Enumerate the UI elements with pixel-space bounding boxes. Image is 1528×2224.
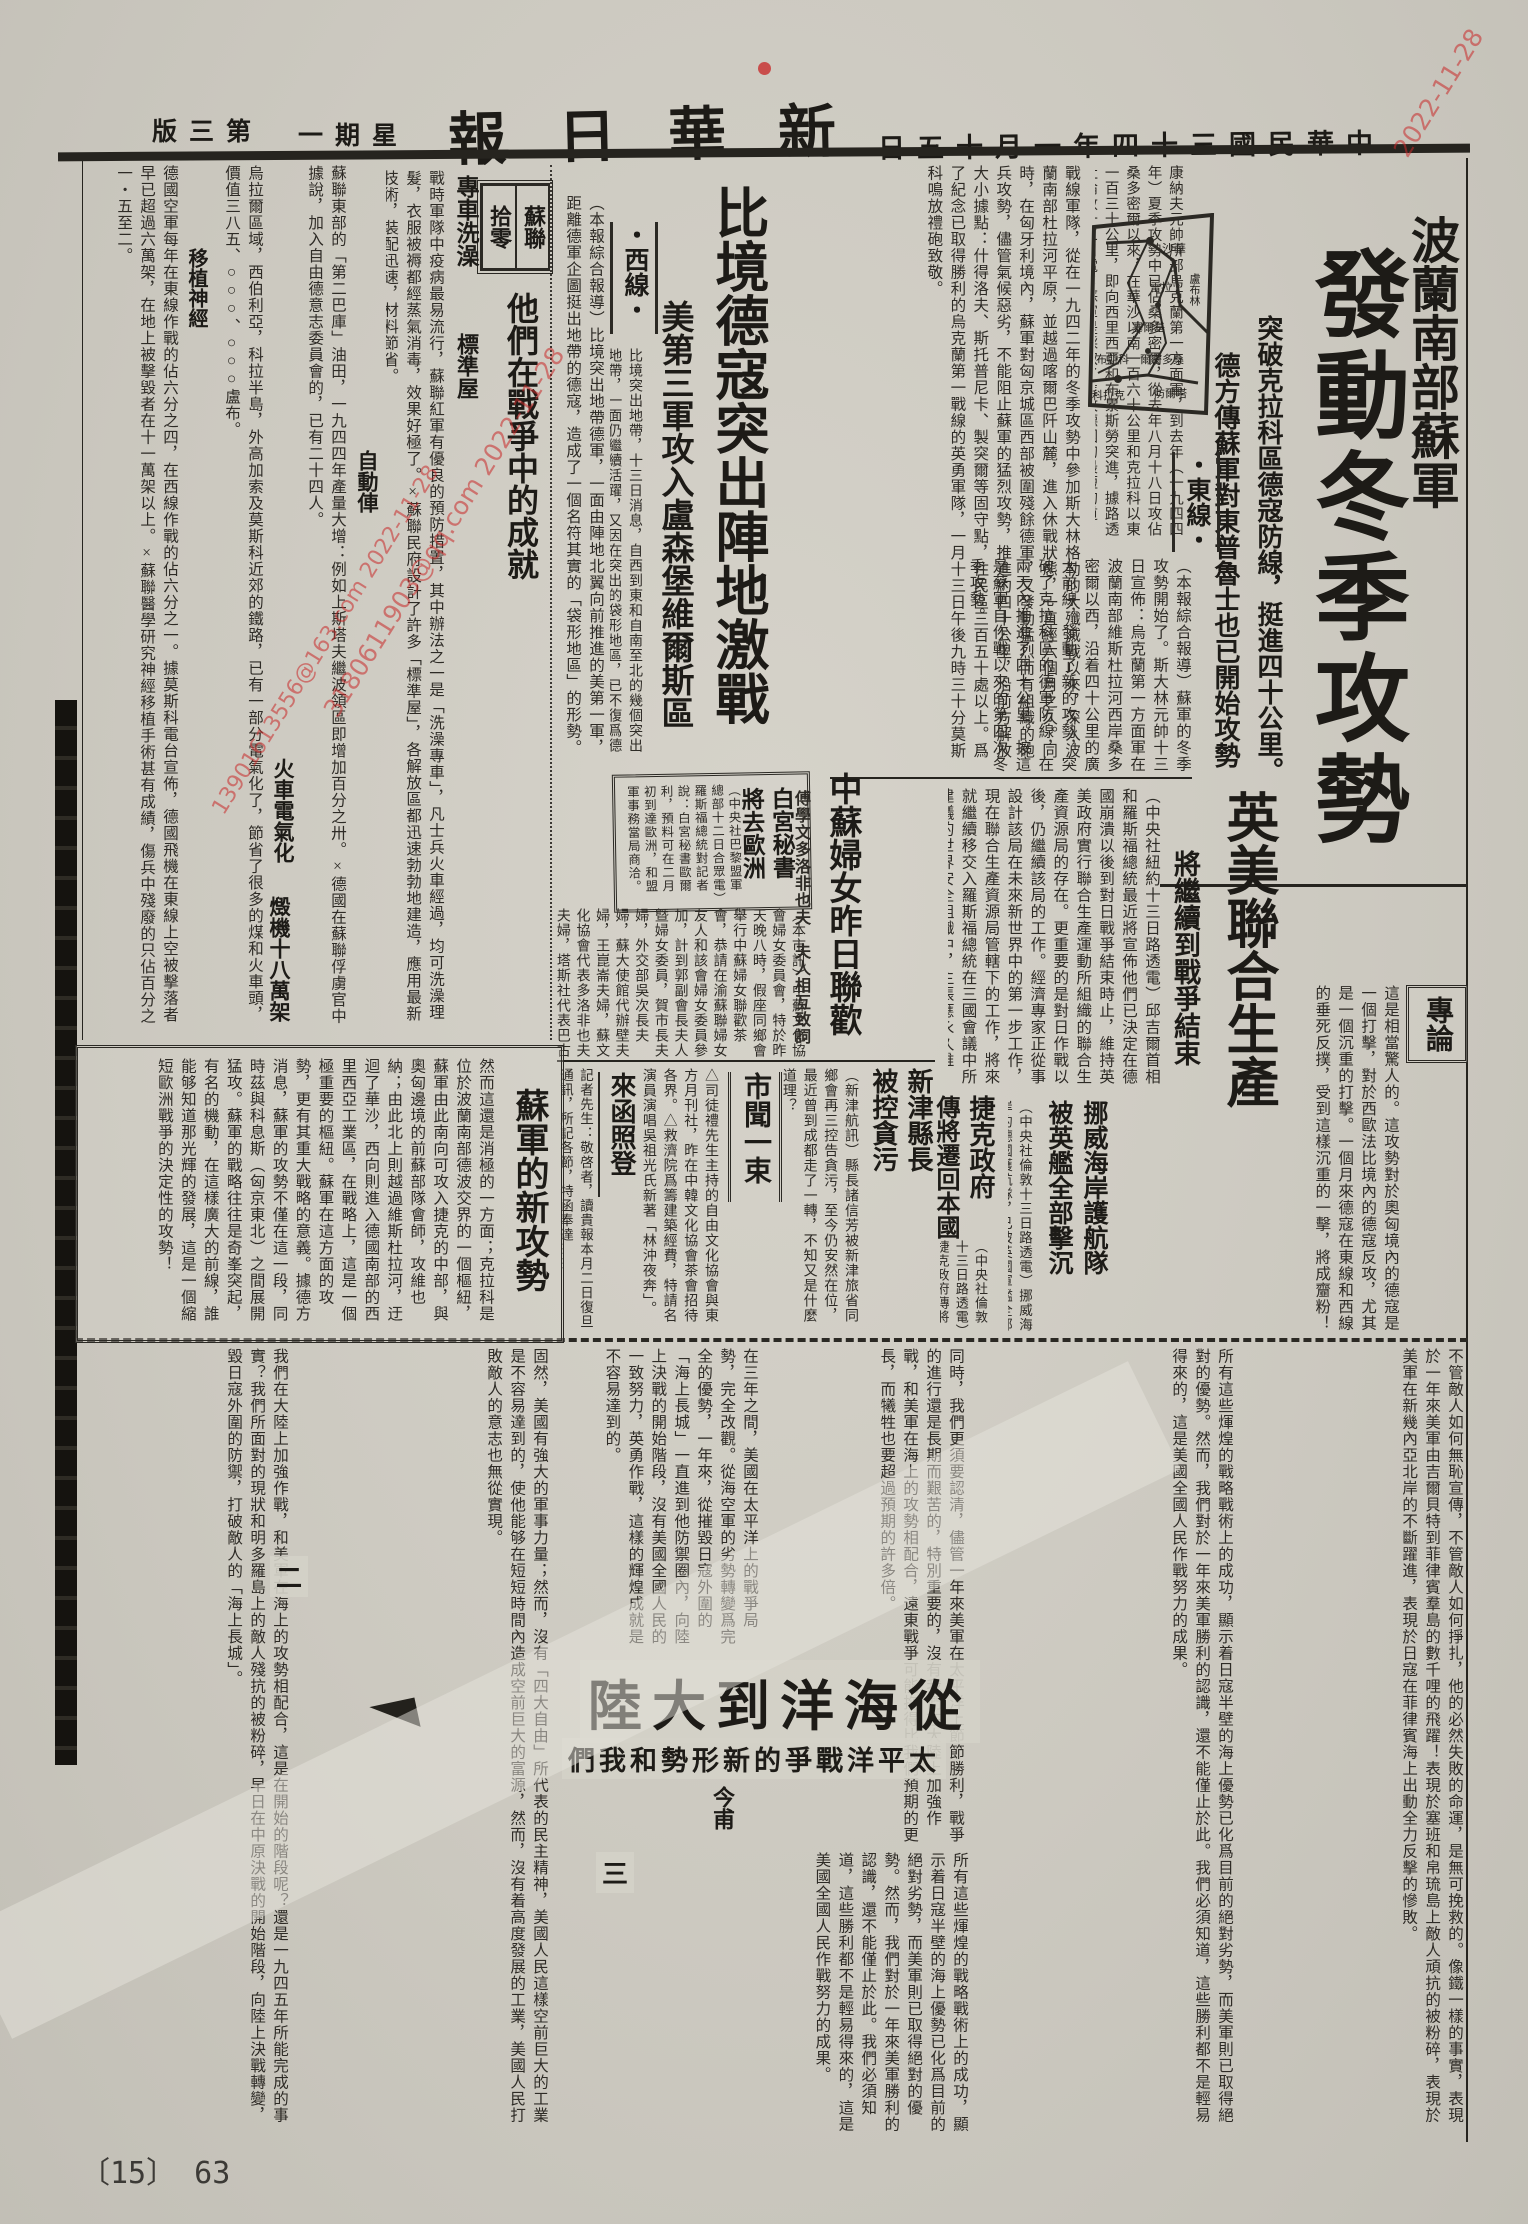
main-headline: 發動冬季攻勢 — [1286, 245, 1423, 893]
ocean-body-d: 在三年之間，美國在太平洋上的戰爭局勢，完全改觀。從海空軍的劣勢轉變爲完全的優勢，… — [560, 1348, 760, 1648]
editorial-opening: 這是相當驚人的。這攻勢對於奧匈境內的德寇是一個打擊，對於西歐法比境內的德寇反攻，… — [1305, 985, 1401, 1335]
ocean-section-two: 二 — [270, 1556, 308, 1597]
editorial-headline: 蘇軍的新攻勢 — [504, 1088, 553, 1316]
standard-house-title: 標準屋 — [450, 333, 482, 411]
norway-headline-a: 挪威海岸護航隊 — [1075, 1100, 1111, 1305]
ocean-body-a: 不管敵人如何無恥宣傳，不管敵人如何掙扎，他的必然失敗的命運，是無可挽救的。像鐵一… — [1245, 1348, 1465, 2136]
women-meeting-headline: 中蘇婦女昨日聯歡 — [818, 772, 866, 1072]
map-label-lublin: 盧布林 — [1188, 272, 1201, 306]
left-edge-black-bar — [55, 700, 77, 1765]
planes-destroyed-title: 燬機十八萬架 — [264, 896, 294, 1036]
left-feature-rule — [82, 160, 83, 1040]
west-lead-text: （本報綜合報導）比境突出地帶德軍，一面由陣地北翼向前推進的美第一軍，距離德軍企圖… — [556, 195, 606, 760]
main-body-a: 康納夫元帥所部烏克蘭第一方面軍，到去年（一九四四年）夏季攻勢中已佔桑多密爾，從去… — [1095, 165, 1185, 550]
archive-page-label: 〔15〕 63 — [80, 2148, 230, 2192]
main-body-b: 戰線軍隊，從在一九四二年的冬季攻勢中參加斯大林格勒的大殲滅戰以來，深入波蘭南部杜… — [740, 165, 1082, 773]
soviet-body-d: 德國空軍每年在東線作戰的佔六分之四，在西線作戰的佔六分之一。據莫斯科電台宣佈，德… — [88, 165, 180, 1031]
editorial-body: 然而這還是消極的一方面；克拉科是位於波蘭南部德波交界的一個樞紐，蘇軍由此南向可攻… — [88, 1058, 496, 1326]
masthead-title: 報日華新 — [447, 83, 889, 177]
ocean-body-e: 固然，美國有強大的軍事力量；然而，沒有「四大自由」所代表的民主精神，美國人民這樣… — [300, 1348, 550, 2136]
ocean-section-three: 三 — [596, 1852, 634, 1893]
soviet-body-a: 戰時軍隊中疫病最易流行，蘇聯紅軍有優良的預防措置，其中辦法之一是「洗澡專車」，凡… — [386, 170, 446, 1028]
letters-headline: 來函照登 — [598, 1072, 640, 1197]
nerve-graft-title: 移植神經 — [182, 248, 211, 340]
joint-production-body: （中央社紐約十三日路透電）邱吉爾首相和羅斯福總統最近將宣佈他們已決定在德國崩潰以… — [948, 788, 1162, 1088]
soviet-body-b: 蘇聯東部的「第二巴庫」油田，一九四四年產量大增：例如上斯塔夫繼波領區即增加百分之… — [300, 165, 348, 1031]
norway-headline-b: 被英艦全部擊沉 — [1040, 1100, 1076, 1305]
masthead-page-number: 版三第 — [152, 112, 263, 148]
ocean-body-f: 我們在大陸上加強作戰，和美軍在海上的攻勢相配合，這是在開始的階段呢？還是一九四五… — [85, 1348, 290, 2136]
ocean-author: 今甫 — [706, 1786, 738, 1848]
white-house-body: （中央社巴黎盟軍總部十二日合眾電）羅斯福總統對記者說：白宮秘書歐爾利，預料可在二… — [623, 783, 743, 901]
editorial-label-box: 專論 — [1406, 985, 1468, 1063]
soviet-achievements-headline: 他們在戰爭中的成就 — [498, 292, 544, 614]
soviet-body-c: 烏拉爾區域，西伯利亞，科拉半島，外高加索及莫斯科近郊的鐵路，已有一部分電氣化了，… — [210, 165, 265, 1031]
bath-train-title: 專車洗澡 — [448, 175, 482, 275]
west-headline: 比境德寇突出陣地激戰 — [698, 185, 777, 765]
train-electrification-title: 火車電氣化 — [268, 758, 298, 874]
editorial-label: 專論 — [1409, 988, 1465, 1060]
west-subhead: 美第三軍攻入盧森堡維爾斯區 — [650, 300, 698, 762]
xinjin-headline-b: 被控貪污 — [865, 1068, 902, 1203]
czech-headline-a: 捷克政府 — [962, 1095, 999, 1225]
city-news-items: △司徒禮先生主持的自由文化協會與東方月刊社，昨在中韓文化協會茶會招待各界。△救濟… — [640, 1068, 720, 1333]
soviet-tidbits-label-box: 拾零 蘇聯 — [480, 183, 550, 271]
mid-rule-1 — [830, 777, 1192, 779]
red-ink-dot — [758, 62, 771, 75]
ocean-body-b: 所有這些煇煌的戰略戰術上的成功，顯示着日寇半壁的海上優勢已化爲目前的絕對劣勢，而… — [975, 1348, 1235, 2136]
joint-production-subhead: 將繼續到戰爭結束 — [1166, 850, 1205, 1142]
women-meeting-body: （本市訊）中蘇文化協會婦女委員會，特於昨天晚八時，假座同鄉會舉行中蘇婦女聯歡茶會… — [557, 908, 807, 1058]
ocean-subhead: 們我和勢形新的爭戰洋平太 — [562, 1738, 946, 1779]
west-body-text: 比境突出地帶，十三日消息，自西到東和自南至北的幾個突出地帶，一面仍繼續活躍，又因… — [610, 348, 644, 760]
masthead-weekday: 一期星 — [298, 116, 409, 152]
ocean-headline: 陸大到洋海從 — [580, 1660, 980, 1743]
feature-west-divider — [550, 165, 552, 1040]
editorial-box: 蘇軍的新攻勢 然而這還是消極的一方面；克拉科是位於波蘭南部德波交界的一個樞紐，蘇… — [75, 1045, 564, 1343]
city-news-headline: 市聞一束 — [728, 1072, 782, 1202]
mid-rule-3 — [557, 1060, 935, 1062]
watermark-date-corner: 2022-11-28 — [1388, 24, 1490, 163]
ocean-body-g: 所有這些煇煌的戰略戰術上的成功，顯示着日寇半壁的海上優勢已化爲目前的絕對劣勢，而… — [640, 1852, 970, 2136]
women-subhead-a: 傅學文多洛非也夫 — [792, 790, 809, 926]
label-char-shi: 拾零 — [482, 185, 516, 269]
label-char-su: 蘇聯 — [516, 185, 550, 269]
xinjin-headline-a: 新津縣長 — [900, 1068, 937, 1203]
auto-car-title: 自動俥 — [352, 450, 382, 524]
joint-production-headline: 英美聯合生產 — [1210, 790, 1286, 1138]
section-west-front: ・西線・ — [610, 222, 658, 334]
czech-body: （中央社倫敦十三日路透電）捷克政府傳將於最近遷回本國。 — [940, 1240, 990, 1335]
newspaper-page: 報日華新 日五十月一年四十三國民華中 一期星 版三第 波蘭南部蘇軍 發動冬季攻勢… — [0, 0, 1528, 2224]
norway-body: （中央社倫敦十三日路透電）挪威海岸的德國護航隊，已被英國軍艦全部擊沉。 — [1008, 1100, 1034, 1332]
masthead-date: 日五十月一年四十三國民華中 — [878, 121, 1385, 165]
